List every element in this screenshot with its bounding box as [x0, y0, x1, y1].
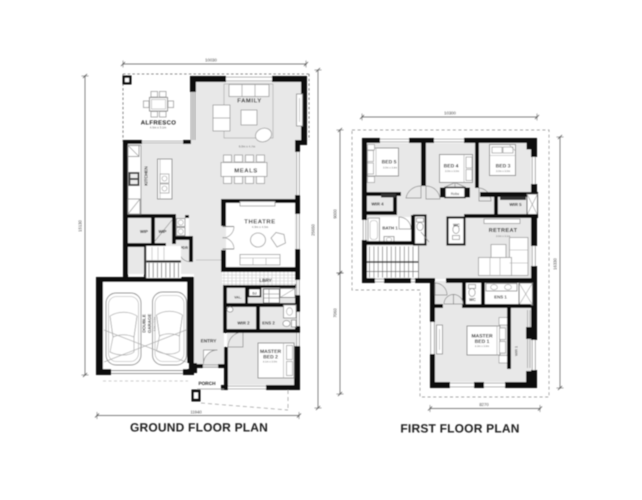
svg-text:BED 4: BED 4 [444, 164, 459, 170]
svg-text:9000: 9000 [333, 209, 338, 219]
svg-text:4.1m x 3.0m: 4.1m x 3.0m [263, 361, 277, 364]
svg-text:WIR 4: WIR 4 [371, 202, 384, 207]
svg-text:3.0m x 3.4m: 3.0m x 3.4m [383, 167, 397, 170]
svg-text:KITCHEN: KITCHEN [144, 166, 149, 186]
svg-text:VAL.: VAL. [234, 296, 242, 300]
svg-text:10300: 10300 [444, 111, 456, 116]
svg-text:3.0m x 3.0m: 3.0m x 3.0m [496, 170, 510, 173]
svg-text:BED 5: BED 5 [382, 160, 397, 166]
svg-text:GARAGE: GARAGE [147, 314, 152, 333]
svg-text:4.9m x 4.5m: 4.9m x 4.5m [252, 225, 269, 229]
svg-text:6.0m x 5.5m: 6.0m x 5.5m [154, 317, 157, 331]
svg-text:15130: 15130 [78, 220, 83, 232]
svg-text:WC: WC [469, 297, 476, 302]
svg-text:16330: 16330 [553, 258, 558, 270]
svg-text:3.6m x 3.1m: 3.6m x 3.1m [496, 235, 510, 238]
svg-text:10030: 10030 [205, 58, 217, 63]
svg-text:ENS 2: ENS 2 [262, 321, 275, 326]
svg-text:WIR 5: WIR 5 [509, 202, 522, 207]
svg-text:BATH 1: BATH 1 [382, 226, 398, 231]
svg-text:MEALS: MEALS [234, 168, 258, 175]
svg-text:3.0m x 3.0m: 3.0m x 3.0m [445, 170, 459, 173]
svg-text:WIP: WIP [159, 229, 167, 234]
svg-text:FIRST FLOOR PLAN: FIRST FLOOR PLAN [400, 422, 519, 436]
svg-text:PORCH: PORCH [199, 381, 217, 386]
svg-text:ENTRY: ENTRY [201, 339, 218, 344]
svg-text:4.5m x 3.1m: 4.5m x 3.1m [150, 126, 167, 130]
svg-text:8270: 8270 [479, 402, 489, 407]
svg-text:DJ: DJ [252, 292, 256, 296]
svg-text:4.3m x 3.9m: 4.3m x 3.9m [475, 345, 489, 348]
svg-text:PDR: PDR [180, 246, 188, 250]
svg-text:LBRY: LBRY [259, 278, 272, 283]
svg-text:ENS 1: ENS 1 [494, 295, 507, 300]
svg-text:FAMILY: FAMILY [237, 98, 261, 105]
svg-text:WIP: WIP [140, 229, 148, 234]
svg-text:RETREAT: RETREAT [489, 228, 518, 234]
svg-text:25650: 25650 [311, 224, 316, 236]
svg-text:11940: 11940 [190, 410, 202, 415]
svg-text:WIR 1: WIR 1 [515, 346, 519, 356]
svg-text:6.0m x 4.7m: 6.0m x 4.7m [239, 145, 256, 149]
svg-text:Robe: Robe [451, 192, 460, 196]
svg-text:7060: 7060 [333, 308, 338, 318]
svg-text:WC: WC [453, 223, 460, 228]
svg-text:DOUBLE: DOUBLE [142, 314, 147, 333]
svg-text:WIR 2: WIR 2 [237, 321, 250, 326]
svg-text:GROUND FLOOR PLAN: GROUND FLOOR PLAN [130, 421, 268, 435]
svg-text:BED 3: BED 3 [496, 164, 511, 170]
